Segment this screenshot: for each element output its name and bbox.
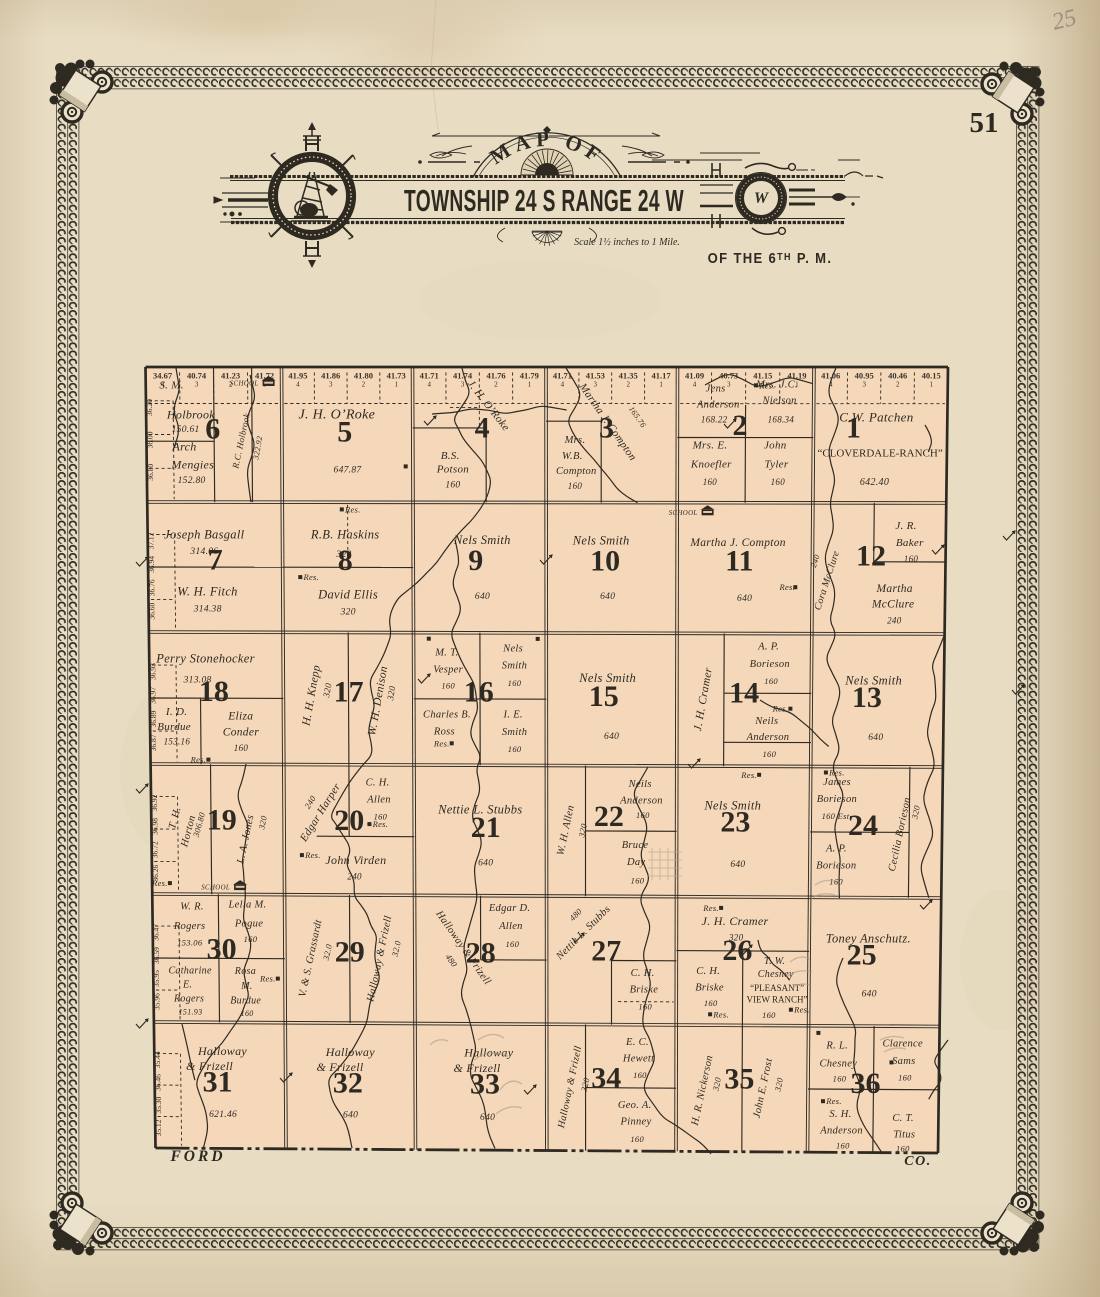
svg-text:160: 160 xyxy=(896,1144,910,1154)
svg-text:Res.: Res. xyxy=(702,903,719,913)
svg-text:4: 4 xyxy=(296,380,300,388)
svg-text:Res.: Res. xyxy=(828,768,845,778)
svg-text:240: 240 xyxy=(887,615,902,625)
svg-text:35: 35 xyxy=(724,1063,754,1096)
svg-text:160: 160 xyxy=(441,680,455,690)
svg-text:25: 25 xyxy=(847,938,877,971)
svg-text:Briske: Briske xyxy=(630,985,659,996)
svg-text:1: 1 xyxy=(528,380,532,388)
svg-text:51: 51 xyxy=(970,107,999,139)
svg-text:2: 2 xyxy=(896,380,900,388)
svg-text:Res.: Res. xyxy=(259,974,276,984)
svg-text:Potson: Potson xyxy=(436,464,470,476)
svg-text:Jens: Jens xyxy=(706,383,726,394)
svg-text:McClure: McClure xyxy=(871,599,915,611)
svg-text:41.71: 41.71 xyxy=(553,370,572,380)
svg-text:647.87: 647.87 xyxy=(334,466,363,476)
svg-text:640: 640 xyxy=(868,733,883,743)
svg-text:35.95: 35.95 xyxy=(152,970,161,987)
svg-text:33: 33 xyxy=(470,1067,500,1100)
svg-text:J. R.: J. R. xyxy=(895,520,916,532)
svg-text:Day: Day xyxy=(626,857,645,868)
svg-text:160: 160 xyxy=(638,1001,652,1011)
svg-text:160: 160 xyxy=(762,749,776,759)
svg-text:36.97: 36.97 xyxy=(149,687,158,704)
svg-text:Titus: Titus xyxy=(893,1130,915,1141)
svg-text:40.74: 40.74 xyxy=(187,370,207,380)
svg-text:21: 21 xyxy=(471,811,501,844)
svg-text:160: 160 xyxy=(904,554,919,564)
svg-text:Edgar D.: Edgar D. xyxy=(488,903,530,914)
svg-text:168.34: 168.34 xyxy=(768,415,795,425)
svg-text:160: 160 xyxy=(445,481,460,491)
svg-text:160: 160 xyxy=(631,875,645,885)
svg-text:36.20: 36.20 xyxy=(145,399,154,416)
svg-text:CO.: CO. xyxy=(904,1154,931,1169)
svg-text:OF THE 6TH P. M.: OF THE 6TH P. M. xyxy=(708,250,833,266)
svg-text:160: 160 xyxy=(836,1141,850,1151)
svg-text:1: 1 xyxy=(846,412,861,445)
svg-text:41.76: 41.76 xyxy=(486,370,505,380)
svg-text:36.76: 36.76 xyxy=(147,579,156,596)
svg-text:4: 4 xyxy=(561,380,565,388)
svg-text:23: 23 xyxy=(720,806,750,839)
svg-text:26: 26 xyxy=(722,934,752,967)
svg-text:SCHOOL: SCHOOL xyxy=(230,381,259,388)
svg-text:9: 9 xyxy=(468,544,483,577)
svg-text:30: 30 xyxy=(207,932,237,965)
svg-text:James: James xyxy=(823,777,851,788)
svg-text:153.16: 153.16 xyxy=(164,736,191,746)
svg-text:Ross: Ross xyxy=(433,727,455,738)
svg-text:Pogue: Pogue xyxy=(234,919,263,930)
svg-text:Knoefler: Knoefler xyxy=(690,458,732,470)
svg-text:C. T.: C. T. xyxy=(892,1113,913,1124)
svg-text:640: 640 xyxy=(604,732,619,742)
svg-text:41.71: 41.71 xyxy=(420,370,439,380)
svg-text:FORD: FORD xyxy=(169,1148,225,1165)
svg-text:41.17: 41.17 xyxy=(652,370,672,380)
svg-text:1: 1 xyxy=(394,380,398,388)
svg-text:David Ellis: David Ellis xyxy=(317,588,378,602)
svg-text:T. W.: T. W. xyxy=(764,956,785,967)
svg-text:160: 160 xyxy=(508,678,522,688)
svg-text:621.46: 621.46 xyxy=(209,1110,237,1120)
svg-text:Arch: Arch xyxy=(171,440,196,454)
svg-text:Halloway: Halloway xyxy=(197,1044,247,1058)
svg-text:3: 3 xyxy=(329,380,333,388)
svg-text:41.09: 41.09 xyxy=(685,370,704,380)
svg-text:3: 3 xyxy=(594,380,598,388)
svg-text:640: 640 xyxy=(480,1113,495,1123)
svg-text:Eliza: Eliza xyxy=(227,710,253,722)
svg-text:Res.: Res. xyxy=(712,1009,729,1019)
svg-text:640: 640 xyxy=(737,594,752,604)
svg-text:R.B. Haskins: R.B. Haskins xyxy=(310,528,380,542)
svg-text:41.74: 41.74 xyxy=(453,370,473,380)
svg-text:642.40: 642.40 xyxy=(860,477,889,488)
svg-text:Res.: Res. xyxy=(793,1005,810,1015)
svg-text:36.72: 36.72 xyxy=(151,841,160,858)
svg-text:24: 24 xyxy=(848,809,878,842)
svg-text:Sams: Sams xyxy=(892,1056,915,1067)
svg-text:3: 3 xyxy=(461,380,465,388)
svg-text:Res.: Res. xyxy=(304,850,321,860)
svg-text:160: 160 xyxy=(704,998,718,1008)
svg-text:17: 17 xyxy=(334,675,364,708)
svg-text:Neils: Neils xyxy=(628,779,652,790)
svg-text:Bruce: Bruce xyxy=(622,840,649,851)
svg-text:40.95: 40.95 xyxy=(855,370,874,380)
svg-text:152.80: 152.80 xyxy=(178,476,206,486)
svg-text:4: 4 xyxy=(475,411,490,444)
svg-text:160: 160 xyxy=(505,939,519,949)
svg-text:27: 27 xyxy=(591,935,621,968)
svg-text:Tyler: Tyler xyxy=(765,459,789,471)
svg-text:153.06: 153.06 xyxy=(177,937,203,947)
svg-text:13: 13 xyxy=(852,681,882,714)
svg-text:160: 160 xyxy=(764,676,778,686)
svg-text:Briske: Briske xyxy=(695,983,724,994)
svg-text:35.44: 35.44 xyxy=(153,1051,162,1068)
svg-text:3: 3 xyxy=(195,380,199,388)
svg-text:Compton: Compton xyxy=(556,466,597,477)
svg-text:3: 3 xyxy=(862,380,866,388)
svg-text:640: 640 xyxy=(862,990,877,1000)
svg-text:Baker: Baker xyxy=(896,537,924,549)
svg-text:31: 31 xyxy=(203,1066,233,1099)
svg-text:Catharine: Catharine xyxy=(168,966,212,977)
svg-text:160: 160 xyxy=(703,477,718,487)
svg-text:Borieson: Borieson xyxy=(816,861,856,872)
svg-text:A. P.: A. P. xyxy=(825,844,847,855)
svg-text:Res.: Res. xyxy=(778,582,795,592)
svg-text:SCHOOL: SCHOOL xyxy=(669,510,698,517)
svg-text:Res.: Res. xyxy=(372,819,389,829)
svg-text:Martha: Martha xyxy=(876,583,913,595)
svg-text:40.15: 40.15 xyxy=(922,370,941,380)
svg-text:S. H.: S. H. xyxy=(829,1109,851,1120)
svg-text:150.61: 150.61 xyxy=(172,425,200,435)
svg-text:Rogers: Rogers xyxy=(173,994,204,1005)
svg-text:2: 2 xyxy=(362,380,366,388)
svg-text:20: 20 xyxy=(334,804,364,837)
svg-text:16: 16 xyxy=(464,676,494,709)
svg-text:160: 160 xyxy=(898,1073,912,1083)
svg-text:2: 2 xyxy=(494,380,498,388)
svg-text:S. M.: S. M. xyxy=(159,380,183,392)
svg-text:Nels: Nels xyxy=(502,644,523,655)
svg-text:Res.: Res. xyxy=(825,1096,842,1106)
svg-text:W.B.: W.B. xyxy=(562,451,583,462)
svg-text:14: 14 xyxy=(729,677,759,710)
svg-text:“CLOVERDALE-RANCH”: “CLOVERDALE-RANCH” xyxy=(817,448,942,460)
svg-text:160: 160 xyxy=(244,934,258,944)
svg-text:6: 6 xyxy=(205,413,220,446)
svg-text:Borieson: Borieson xyxy=(750,659,790,670)
svg-text:36.98: 36.98 xyxy=(150,818,159,835)
svg-text:Res.: Res. xyxy=(302,572,319,582)
svg-text:36.80: 36.80 xyxy=(146,464,155,481)
svg-text:1: 1 xyxy=(659,380,663,388)
svg-text:Mrs.: Mrs. xyxy=(564,435,586,446)
svg-text:Halloway: Halloway xyxy=(325,1045,375,1059)
svg-text:41.79: 41.79 xyxy=(520,370,539,380)
svg-text:Rogers: Rogers xyxy=(173,921,206,932)
svg-text:Perry Stonehocker: Perry Stonehocker xyxy=(155,652,254,666)
svg-text:160: 160 xyxy=(833,1074,847,1084)
svg-text:E.: E. xyxy=(182,980,192,991)
svg-text:Lelia M.: Lelia M. xyxy=(228,899,267,910)
svg-text:VIEW RANCH”: VIEW RANCH” xyxy=(746,995,807,1005)
svg-text:John Virden: John Virden xyxy=(325,853,386,867)
svg-text:18: 18 xyxy=(199,675,229,708)
svg-text:E. C.: E. C. xyxy=(625,1037,649,1048)
svg-text:M.: M. xyxy=(240,981,252,992)
svg-text:A. P.: A. P. xyxy=(757,642,779,653)
svg-text:Allen: Allen xyxy=(498,921,523,932)
svg-text:Chesney: Chesney xyxy=(758,969,794,980)
svg-text:160: 160 xyxy=(568,481,583,491)
svg-text:36.59: 36.59 xyxy=(152,947,161,964)
svg-text:41.23: 41.23 xyxy=(221,370,240,380)
svg-text:36.60: 36.60 xyxy=(148,603,157,620)
svg-text:640: 640 xyxy=(343,1111,358,1121)
svg-text:Anderson: Anderson xyxy=(619,796,663,807)
svg-text:36.00: 36.00 xyxy=(146,431,155,448)
svg-text:5: 5 xyxy=(337,415,352,448)
svg-text:36.92: 36.92 xyxy=(150,794,159,811)
svg-text:34: 34 xyxy=(591,1062,621,1095)
svg-text:240: 240 xyxy=(347,871,362,881)
svg-text:J. H. Cramer: J. H. Cramer xyxy=(702,914,769,928)
svg-text:Mengies: Mengies xyxy=(170,457,214,471)
svg-text:Res.: Res. xyxy=(151,878,168,888)
svg-text:2: 2 xyxy=(733,409,748,442)
svg-text:41.80: 41.80 xyxy=(354,370,373,380)
svg-text:R. L.: R. L. xyxy=(825,1041,848,1052)
svg-text:3: 3 xyxy=(599,412,614,445)
svg-text:640: 640 xyxy=(478,859,493,869)
svg-text:Charles B.: Charles B. xyxy=(423,710,471,721)
svg-text:Geo. A.: Geo. A. xyxy=(618,1100,652,1111)
svg-text:I. D.: I. D. xyxy=(165,706,187,718)
svg-text:36.47: 36.47 xyxy=(152,924,161,941)
svg-text:1: 1 xyxy=(929,380,933,388)
svg-text:W. H. Fitch: W. H. Fitch xyxy=(177,585,237,599)
svg-text:36.94: 36.94 xyxy=(147,556,156,573)
svg-text:2: 2 xyxy=(626,380,630,388)
svg-text:160: 160 xyxy=(241,1009,254,1018)
svg-text:Vesper: Vesper xyxy=(433,665,463,676)
svg-text:8: 8 xyxy=(338,544,353,577)
svg-text:160: 160 xyxy=(771,477,786,487)
svg-text:36: 36 xyxy=(851,1067,881,1100)
svg-text:314.38: 314.38 xyxy=(193,604,222,614)
svg-text:Res.: Res. xyxy=(190,755,207,765)
svg-text:Allen: Allen xyxy=(366,795,391,806)
svg-text:M. T.: M. T. xyxy=(434,647,458,658)
svg-text:28: 28 xyxy=(466,936,496,969)
svg-text:160: 160 xyxy=(636,810,650,820)
svg-text:151.93: 151.93 xyxy=(179,1008,203,1017)
svg-text:35.30: 35.30 xyxy=(154,1097,163,1114)
svg-text:168.22: 168.22 xyxy=(701,415,728,425)
svg-text:4: 4 xyxy=(427,380,431,388)
svg-text:7: 7 xyxy=(208,544,223,577)
svg-text:Rosa: Rosa xyxy=(234,966,256,977)
svg-text:41.86: 41.86 xyxy=(321,370,340,380)
svg-text:Smith: Smith xyxy=(502,661,527,672)
svg-text:160: 160 xyxy=(508,744,522,754)
svg-text:Smith: Smith xyxy=(502,727,527,738)
svg-text:Pinney: Pinney xyxy=(620,1117,652,1128)
svg-text:John: John xyxy=(764,440,787,452)
svg-text:640: 640 xyxy=(730,860,745,870)
svg-text:Res.: Res. xyxy=(740,770,757,780)
svg-text:“PLEASANT”: “PLEASANT” xyxy=(750,983,804,993)
svg-text:12: 12 xyxy=(856,540,886,573)
svg-text:3: 3 xyxy=(727,380,731,388)
svg-text:640: 640 xyxy=(600,592,615,602)
svg-text:I. E.: I. E. xyxy=(503,710,523,721)
svg-text:Res.: Res. xyxy=(344,504,361,514)
svg-text:41.35: 41.35 xyxy=(619,370,638,380)
svg-text:41.95: 41.95 xyxy=(288,370,307,380)
svg-text:Joseph Basgall: Joseph Basgall xyxy=(164,528,244,542)
svg-text:29: 29 xyxy=(335,936,365,969)
svg-text:41.53: 41.53 xyxy=(586,370,605,380)
svg-text:Anderson: Anderson xyxy=(746,732,790,743)
svg-text:35.96: 35.96 xyxy=(153,993,162,1010)
svg-text:41.73: 41.73 xyxy=(387,370,406,380)
svg-text:640: 640 xyxy=(475,592,490,602)
svg-text:Neils: Neils xyxy=(754,716,778,727)
svg-text:4: 4 xyxy=(693,380,697,388)
svg-text:36.87: 36.87 xyxy=(149,734,158,751)
svg-text:19: 19 xyxy=(207,803,237,836)
svg-text:Res.: Res. xyxy=(758,380,775,390)
svg-text:Borieson: Borieson xyxy=(817,794,857,805)
svg-text:160: 160 xyxy=(234,743,249,753)
svg-text:Burdue: Burdue xyxy=(230,995,261,1006)
svg-text:36.46: 36.46 xyxy=(154,1074,163,1091)
svg-text:C. H.: C. H. xyxy=(696,966,720,977)
svg-text:37.12: 37.12 xyxy=(147,532,156,549)
svg-text:Hewett: Hewett xyxy=(622,1053,655,1064)
svg-text:4: 4 xyxy=(829,380,833,388)
svg-text:35.12: 35.12 xyxy=(154,1119,163,1136)
svg-text:40.46: 40.46 xyxy=(888,370,907,380)
svg-text:W. R.: W. R. xyxy=(180,902,204,913)
svg-text:B.S.: B.S. xyxy=(441,450,460,462)
svg-text:41.06: 41.06 xyxy=(821,370,840,380)
svg-text:Burdue: Burdue xyxy=(157,721,191,733)
svg-text:40.73: 40.73 xyxy=(719,370,738,380)
svg-text:160: 160 xyxy=(633,1070,647,1080)
svg-text:Conder: Conder xyxy=(223,726,260,738)
svg-text:Mrs. E.: Mrs. E. xyxy=(692,439,728,451)
svg-text:15: 15 xyxy=(589,680,619,713)
svg-text:Anderson: Anderson xyxy=(819,1125,863,1136)
svg-text:Nielson: Nielson xyxy=(762,396,797,407)
svg-text:TOWNSHIP 24 S RANGE 24 W: TOWNSHIP 24 S RANGE 24 W xyxy=(404,185,684,219)
svg-text:Res.: Res. xyxy=(433,738,450,748)
svg-text:Res.: Res. xyxy=(772,704,789,714)
svg-text:C. H.: C. H. xyxy=(366,778,390,789)
svg-text:Scale 1½ inches to 1 Mile.: Scale 1½ inches to 1 Mile. xyxy=(574,237,680,248)
svg-text:11: 11 xyxy=(725,545,753,578)
svg-text:C. H.: C. H. xyxy=(631,968,655,979)
svg-text:32: 32 xyxy=(333,1067,363,1100)
svg-text:160: 160 xyxy=(762,1010,776,1020)
svg-text:W: W xyxy=(754,190,770,207)
svg-text:160: 160 xyxy=(630,1134,644,1144)
svg-text:SCHOOL: SCHOOL xyxy=(201,885,230,892)
svg-text:320: 320 xyxy=(340,607,356,617)
svg-text:10: 10 xyxy=(590,545,620,578)
